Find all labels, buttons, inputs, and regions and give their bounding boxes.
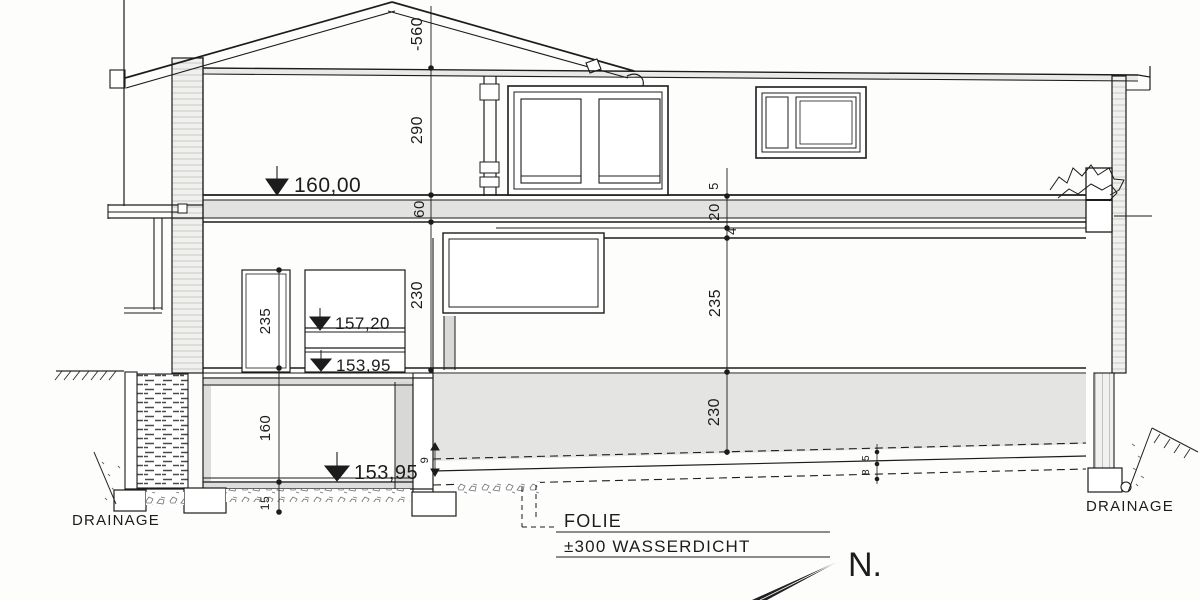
- level-eg: 160,00: [294, 174, 361, 197]
- footing-left-outer: [114, 490, 146, 511]
- dim-upper-room: 290: [409, 116, 426, 144]
- folie-spec: ±300 WASSERDICHT: [564, 537, 751, 556]
- excavation-slope-left: [94, 452, 116, 504]
- level-arrow-eg: [266, 179, 288, 195]
- north-arrow-icon: [752, 560, 841, 600]
- drainage-label-right: DRAINAGE: [1086, 498, 1174, 515]
- dim-layer-bottom: 4: [724, 227, 739, 235]
- section-drawing: -560 290 60 230 5 20 4 235 230 235 160 1…: [0, 0, 1200, 600]
- left-exterior-wall: [172, 58, 203, 373]
- window-right: [756, 87, 866, 158]
- dim-right-upper-room: 235: [707, 289, 724, 317]
- right-foundation-column: [1094, 373, 1114, 470]
- excavation-slope-right: [1128, 428, 1152, 492]
- dim-ridge: -560: [409, 17, 426, 51]
- dim-basement-room: 160: [257, 415, 274, 442]
- dim-layer-top: 5: [706, 182, 721, 190]
- right-exterior-wall: [1112, 76, 1126, 373]
- ground-line-right: [1152, 428, 1198, 452]
- basement-insulated-wall: [137, 374, 188, 488]
- basement-wall-outer-shell: [125, 372, 137, 490]
- level-split-lower: 153,95: [336, 356, 391, 375]
- level-arrow-basement: [325, 466, 349, 481]
- left-eave-fascia: [110, 70, 125, 88]
- level-basement: 153,95: [354, 462, 418, 484]
- dim-layer-mid: 20: [706, 203, 723, 221]
- drainage-label-left: DRAINAGE: [72, 512, 160, 529]
- roof-left-slope-inner: [126, 11, 395, 88]
- window-large: [508, 86, 668, 195]
- footing-left-inner: [184, 488, 226, 513]
- dim-left-mid-room: 230: [409, 281, 426, 309]
- folie-title: FOLIE: [564, 511, 622, 531]
- dim-door-opening: 235: [257, 308, 274, 335]
- dim-right-lower-room: 230: [706, 398, 723, 426]
- dim-slope-right-top-value: 5: [861, 455, 872, 461]
- dim-slope-right-bottom-value: 8: [861, 469, 872, 475]
- footing-right: [1088, 468, 1122, 492]
- dim-basement-slab: 15: [258, 496, 272, 510]
- north-arrow: N.: [752, 546, 882, 600]
- dim-slope-left-value: 9: [419, 457, 431, 464]
- footing-center: [412, 492, 456, 516]
- level-landing: 157,20: [335, 314, 390, 333]
- folie-note: FOLIE ±300 WASSERDICHT: [522, 485, 830, 557]
- dim-floor-slab: 60: [411, 200, 428, 218]
- window-lower-level: [443, 233, 604, 313]
- building-section-sheet: -560 290 60 230 5 20 4 235 230 235 160 1…: [0, 0, 1200, 600]
- north-label: N.: [848, 546, 882, 584]
